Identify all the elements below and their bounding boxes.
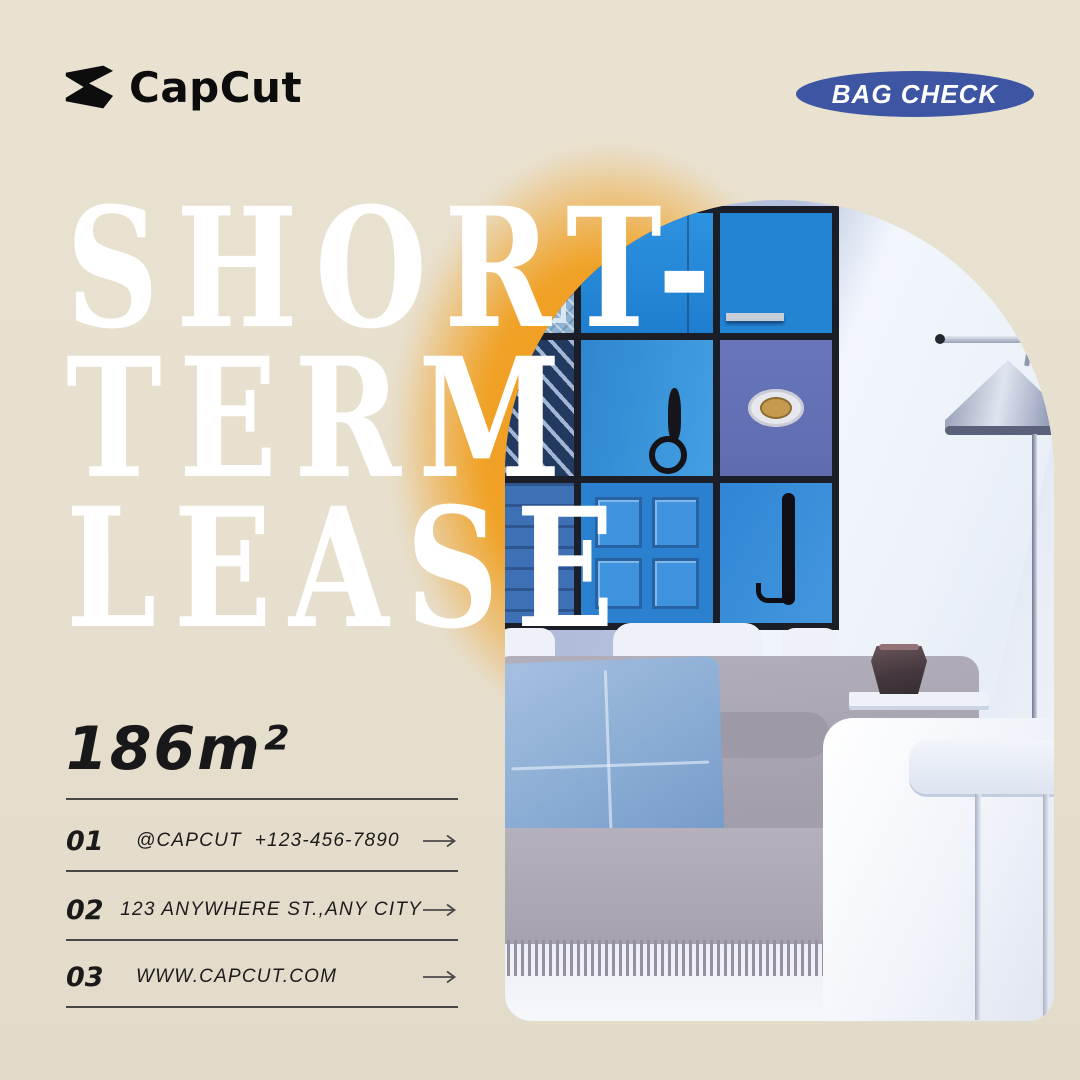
divider-line xyxy=(66,939,458,941)
floor-lamp-rim xyxy=(945,426,1054,435)
headline: SHORT- TERM LEASE xyxy=(66,193,728,643)
table-leg xyxy=(975,794,981,1020)
door-detail xyxy=(756,583,794,603)
door-tile-medallion xyxy=(720,340,832,476)
door-detail xyxy=(760,397,792,419)
badge-label: BAG CHECK xyxy=(832,79,998,110)
capcut-logo: CapCut xyxy=(62,62,302,112)
door-tile-lever xyxy=(720,483,832,623)
row-number: 01 xyxy=(66,826,136,857)
bag-check-badge[interactable]: BAG CHECK xyxy=(796,71,1034,117)
capcut-logo-icon xyxy=(62,62,116,112)
dark-vase xyxy=(871,644,927,694)
white-side-table xyxy=(909,740,1054,794)
door-detail xyxy=(726,313,784,321)
door-detail xyxy=(748,389,804,427)
arrow-right-icon xyxy=(422,834,458,848)
divider-line xyxy=(66,870,458,872)
door-tile-blue-handle xyxy=(720,213,832,333)
row-label: @CAPCUT +123-456-7890 xyxy=(136,830,400,852)
row-label: 123 ANYWHERE ST.,ANY CITY xyxy=(120,899,422,921)
arrow-right-icon xyxy=(422,903,458,917)
poster-canvas: SHORT- TERM LEASE CapCut BAG CHECK 186m²… xyxy=(0,0,1080,1080)
area-size-label: 186m² xyxy=(66,714,290,784)
arrow-right-icon xyxy=(422,970,458,984)
row-label: WWW.CAPCUT.COM xyxy=(136,966,337,988)
contact-row-address[interactable]: 02 123 ANYWHERE ST.,ANY CITY xyxy=(66,888,458,932)
row-number: 02 xyxy=(66,895,120,926)
divider-line xyxy=(66,1006,458,1008)
dark-vase-rim xyxy=(879,644,919,650)
contact-row-phone[interactable]: 01 @CAPCUT +123-456-7890 xyxy=(66,819,458,863)
table-leg xyxy=(1043,794,1049,1020)
contact-row-website[interactable]: 03 WWW.CAPCUT.COM xyxy=(66,955,458,999)
side-table xyxy=(849,692,989,706)
headline-line-3: LEASE xyxy=(66,493,728,643)
pillow-seam xyxy=(604,670,613,850)
capcut-wordmark: CapCut xyxy=(129,63,302,112)
row-number: 03 xyxy=(66,962,136,993)
divider-line xyxy=(66,798,458,800)
floor-lamp-arm xyxy=(941,336,1053,343)
floor-lamp-tip xyxy=(935,334,945,344)
